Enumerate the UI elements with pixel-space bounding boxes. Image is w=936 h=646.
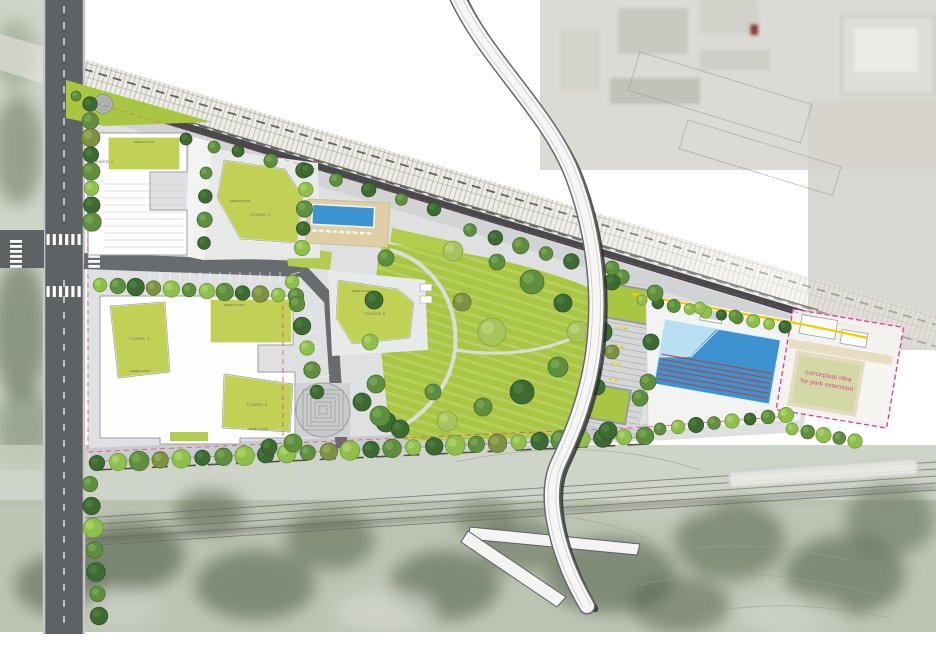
green-roof-label: GREEN ROOF — [352, 289, 373, 293]
green-roof-label: GREEN ROOF — [248, 427, 269, 431]
green-roof — [210, 299, 292, 343]
site-plan-page: conceptual idea for park extension TOWER… — [0, 0, 936, 646]
tower-label: TOWER 2 — [250, 212, 271, 217]
green-roof-label: GREEN ROOF — [130, 369, 151, 373]
upper-pool — [312, 204, 375, 227]
tower-label: TOWER 3 — [129, 336, 150, 341]
green-roof-label: GREEN ROOF — [134, 140, 155, 144]
green-roof — [170, 432, 208, 441]
green-roof-label: GREEN ROOF — [224, 303, 245, 307]
green-roof-label: GREEN ROOF — [230, 199, 251, 203]
upper-pool-terrace — [306, 199, 390, 247]
site-street-east — [84, 261, 302, 269]
tower-label: TOWER 4 — [247, 402, 268, 407]
site-plan-drawing: conceptual idea for park extension TOWER… — [0, 0, 936, 646]
tower-label: TOWER 1 — [93, 159, 114, 164]
tower-label: TOWER 5 — [365, 311, 386, 316]
park-extension-area: conceptual idea for park extension — [776, 309, 903, 428]
